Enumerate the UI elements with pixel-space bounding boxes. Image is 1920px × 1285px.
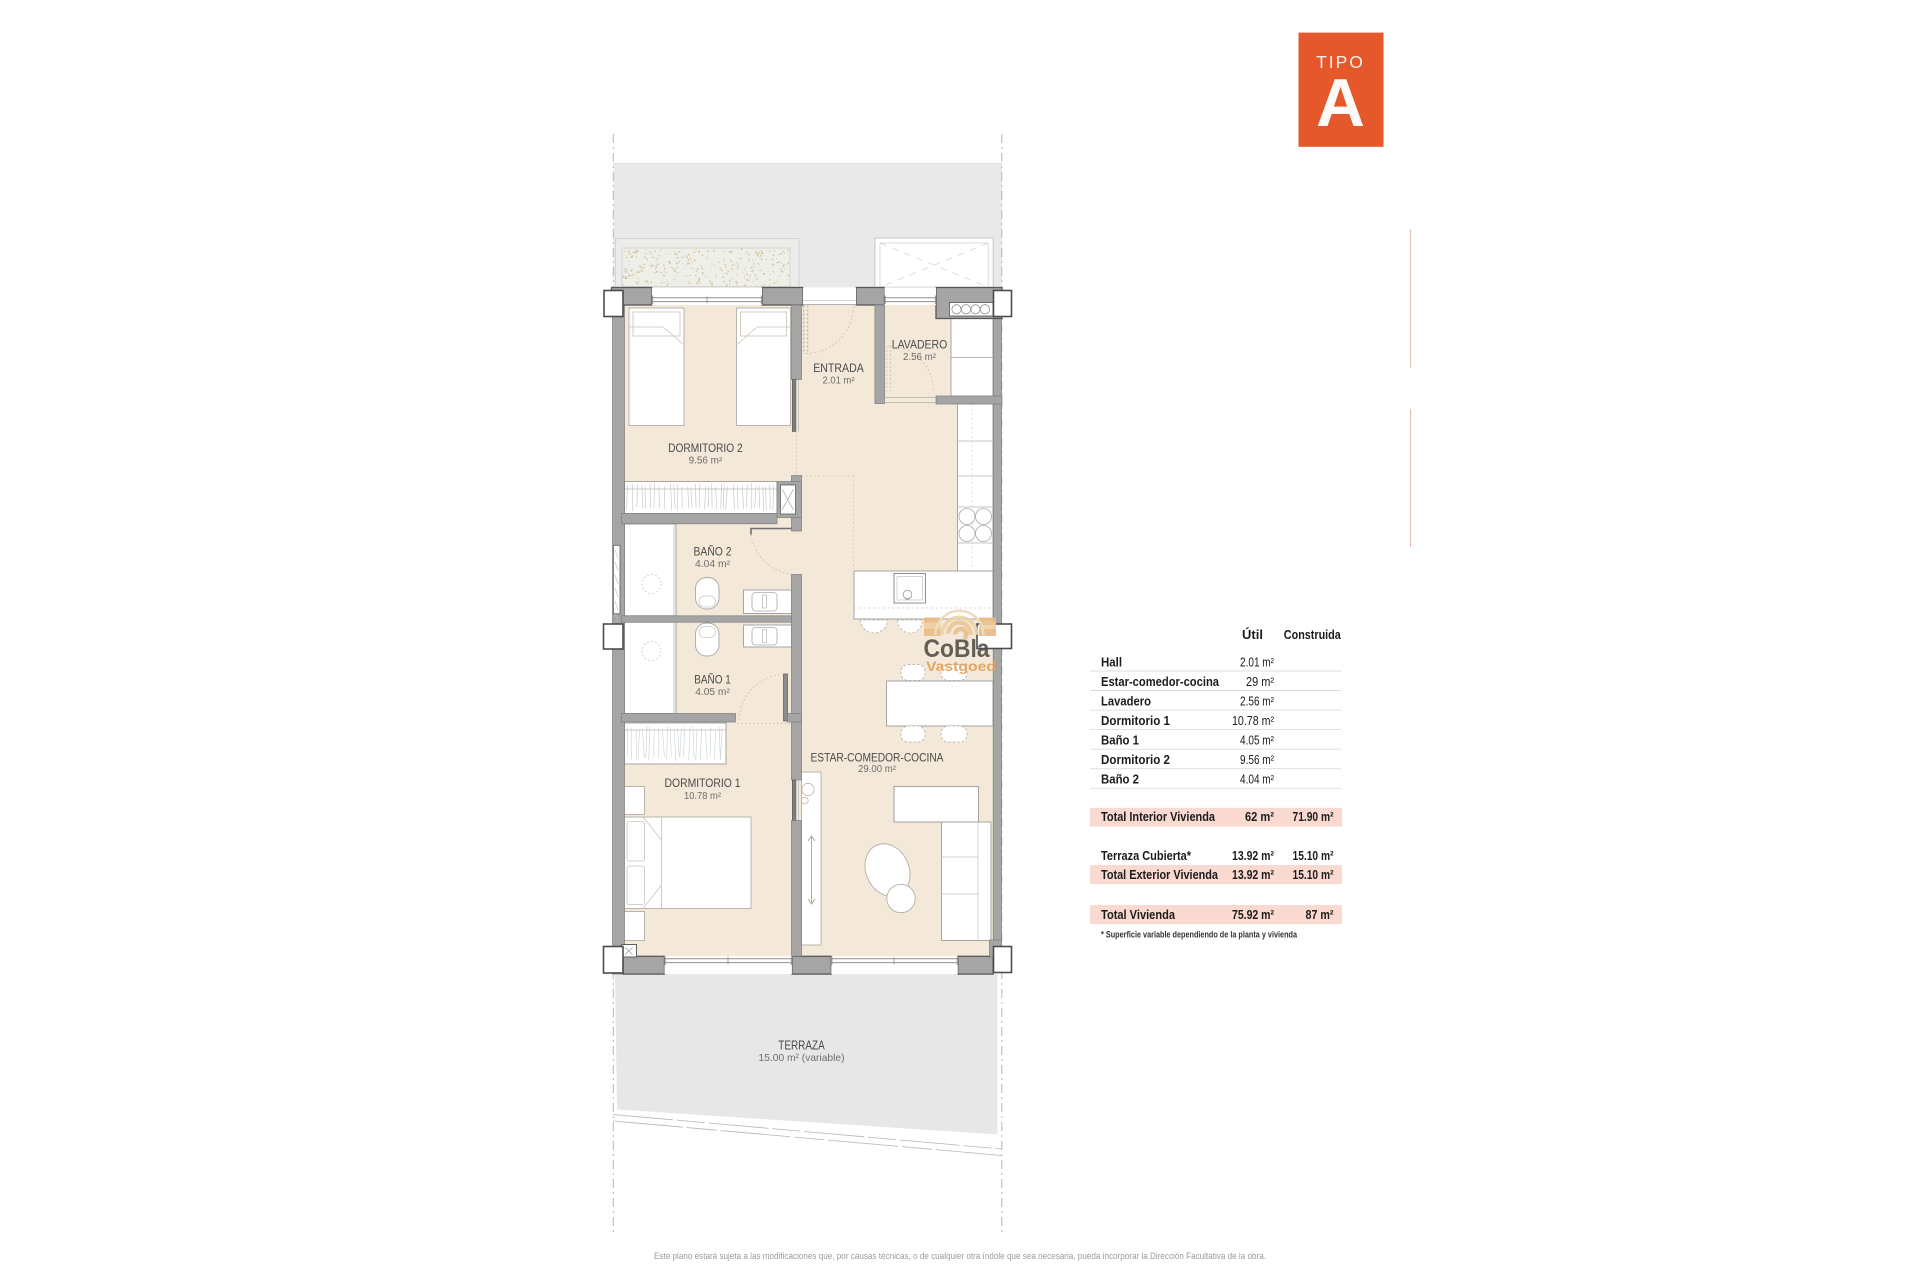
svg-text:DORMITORIO 1: DORMITORIO 1 bbox=[665, 776, 741, 790]
svg-text:ENTRADA: ENTRADA bbox=[813, 361, 864, 375]
svg-text:9.56 m²: 9.56 m² bbox=[689, 456, 723, 467]
svg-text:Útil: Útil bbox=[1242, 627, 1263, 642]
svg-text:Lavadero: Lavadero bbox=[1101, 694, 1151, 709]
svg-text:Vastgoed: Vastgoed bbox=[926, 659, 996, 674]
svg-text:2.56 m²: 2.56 m² bbox=[1240, 694, 1275, 709]
svg-text:Baño 1: Baño 1 bbox=[1101, 733, 1139, 748]
svg-text:Estar-comedor-cocina: Estar-comedor-cocina bbox=[1101, 674, 1220, 689]
svg-text:Terraza Cubierta*: Terraza Cubierta* bbox=[1101, 848, 1192, 863]
svg-text:DORMITORIO 2: DORMITORIO 2 bbox=[668, 441, 743, 455]
svg-text:10.78 m²: 10.78 m² bbox=[684, 791, 722, 802]
svg-text:Baño 2: Baño 2 bbox=[1101, 772, 1139, 787]
svg-text:4.04 m²: 4.04 m² bbox=[695, 559, 731, 570]
svg-text:62 m²: 62 m² bbox=[1245, 809, 1275, 824]
svg-text:4.04 m²: 4.04 m² bbox=[1240, 772, 1275, 787]
svg-text:2.01 m²: 2.01 m² bbox=[1240, 655, 1275, 670]
svg-text:4.05 m²: 4.05 m² bbox=[1240, 733, 1275, 748]
svg-text:71.90 m²: 71.90 m² bbox=[1293, 809, 1335, 824]
svg-text:* Superficie variable dependie: * Superficie variable dependiendo de la … bbox=[1101, 930, 1298, 940]
svg-text:TERRAZA: TERRAZA bbox=[778, 1038, 825, 1053]
svg-text:Hall: Hall bbox=[1101, 655, 1122, 670]
svg-text:Dormitorio 1: Dormitorio 1 bbox=[1101, 713, 1170, 728]
svg-text:Dormitorio 2: Dormitorio 2 bbox=[1101, 752, 1170, 767]
svg-text:15.00 m² (variable): 15.00 m² (variable) bbox=[759, 1053, 845, 1064]
svg-text:13.92 m²: 13.92 m² bbox=[1232, 848, 1275, 863]
svg-text:BAÑO 2: BAÑO 2 bbox=[694, 545, 732, 559]
svg-text:Este plano estará sujeta a las: Este plano estará sujeta a las modificac… bbox=[654, 1251, 1266, 1262]
svg-text:10.78 m²: 10.78 m² bbox=[1232, 713, 1275, 728]
svg-text:87 m²: 87 m² bbox=[1306, 907, 1335, 922]
svg-text:A: A bbox=[1316, 66, 1365, 141]
svg-text:4.05 m²: 4.05 m² bbox=[695, 687, 730, 698]
svg-text:29.00 m²: 29.00 m² bbox=[858, 764, 897, 775]
svg-text:ESTAR-COMEDOR-COCINA: ESTAR-COMEDOR-COCINA bbox=[811, 751, 944, 765]
svg-text:BAÑO 1: BAÑO 1 bbox=[694, 673, 731, 687]
svg-text:Total Vivienda: Total Vivienda bbox=[1101, 907, 1176, 922]
svg-text:15.10 m²: 15.10 m² bbox=[1293, 848, 1335, 863]
svg-text:LAVADERO: LAVADERO bbox=[892, 338, 948, 352]
svg-text:Total Interior Vivienda: Total Interior Vivienda bbox=[1101, 809, 1216, 824]
svg-text:75.92 m²: 75.92 m² bbox=[1232, 907, 1275, 922]
svg-text:2.01 m²: 2.01 m² bbox=[823, 376, 856, 387]
svg-text:15.10 m²: 15.10 m² bbox=[1293, 867, 1335, 882]
svg-text:Construida: Construida bbox=[1284, 627, 1342, 642]
svg-text:9.56 m²: 9.56 m² bbox=[1240, 752, 1275, 767]
svg-text:2.56 m²: 2.56 m² bbox=[903, 352, 937, 363]
svg-text:13.92 m²: 13.92 m² bbox=[1232, 867, 1275, 882]
svg-text:29 m²: 29 m² bbox=[1246, 674, 1275, 689]
svg-text:Total Exterior Vivienda: Total Exterior Vivienda bbox=[1101, 867, 1219, 882]
